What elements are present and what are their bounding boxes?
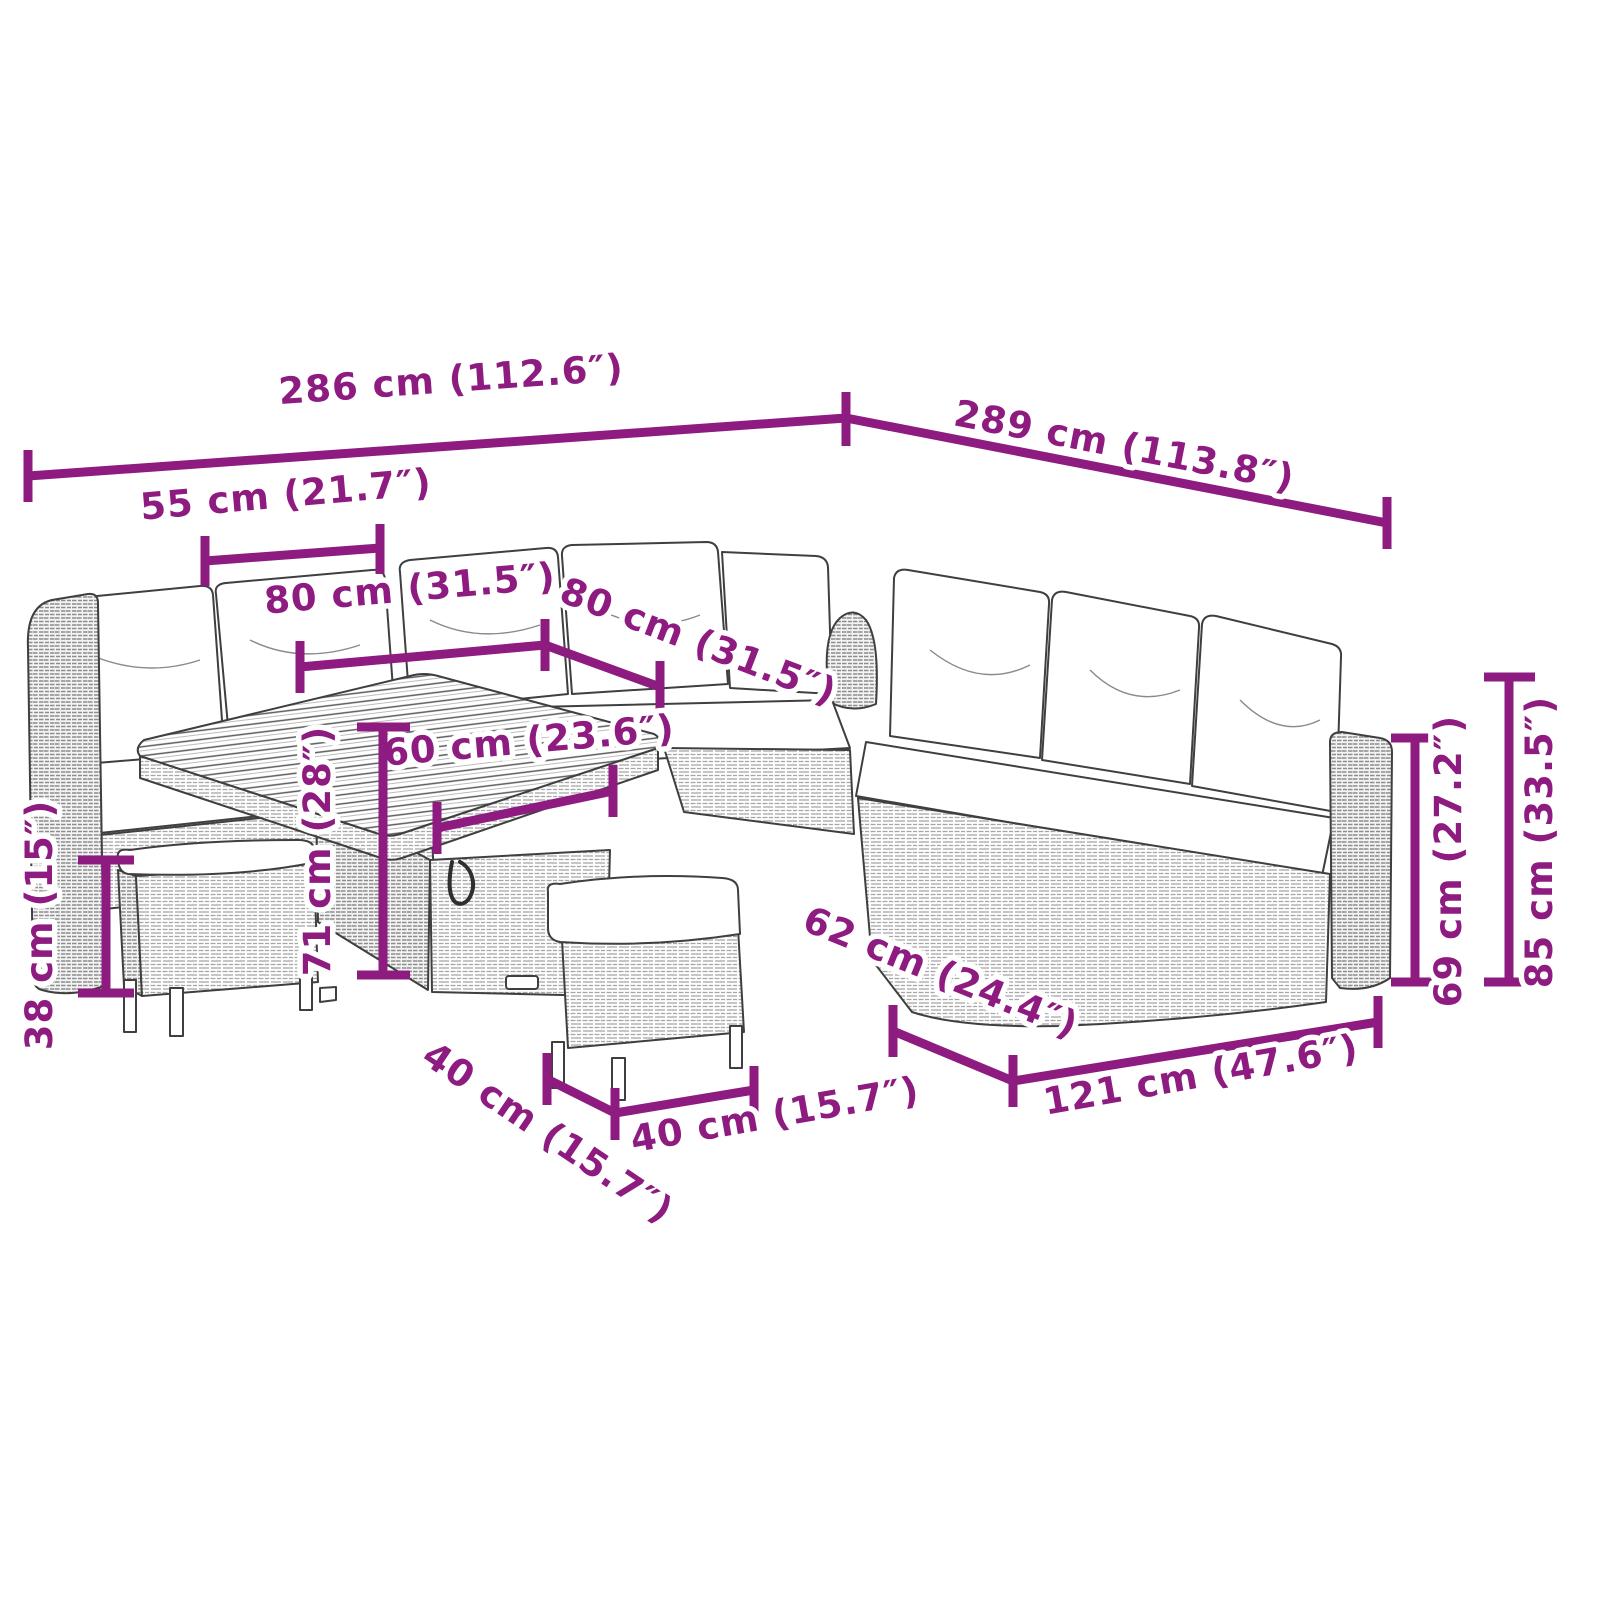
back-pillow [1192,616,1341,812]
stool-front-left [118,840,318,1036]
dim-seat-width: 55 cm (21.7″) [138,460,433,586]
dim-armrest-height: 69 cm (27.2″) [1391,715,1470,1007]
dimension-label: 286 cm (112.6″) [277,346,625,413]
dim-stool-width: 40 cm (15.7″) [615,1066,923,1161]
dim-back-width-left: 286 cm (112.6″) [28,346,846,502]
dimension-label: 55 cm (21.7″) [138,460,433,528]
dimension-label: 40 cm (15.7″) [627,1068,922,1161]
dimension-label: 121 cm (47.6″) [1040,1026,1362,1124]
sofa-base-middle [664,748,854,834]
stool-leg [170,988,183,1036]
back-pillow [1042,592,1199,784]
stool-leg [730,1026,742,1068]
stool-front-center [548,876,744,1100]
dimension-label: 69 cm (27.2″) [1427,715,1470,1007]
dimension-label: 85 cm (33.5″) [1518,696,1561,988]
dim-back-width-right: 289 cm (113.8″) [846,392,1387,549]
dimension-label: 38 cm (15″) [18,800,61,1051]
stool-leg [124,980,136,1032]
back-pillow [890,570,1049,758]
armrest-right [1330,732,1392,989]
stool-front [562,928,744,1048]
table-slot [506,976,538,989]
stool-front [136,864,318,996]
stool-cushion [548,876,740,944]
dimension-label: 71 cm (28″) [296,726,339,977]
product-dimension-diagram: 286 cm (112.6″) 289 cm (113.8″) 55 cm (2… [0,0,1600,1600]
dim-backrest-height: 85 cm (33.5″) [1484,677,1561,988]
diagram-canvas: 286 cm (112.6″) 289 cm (113.8″) 55 cm (2… [0,0,1600,1600]
